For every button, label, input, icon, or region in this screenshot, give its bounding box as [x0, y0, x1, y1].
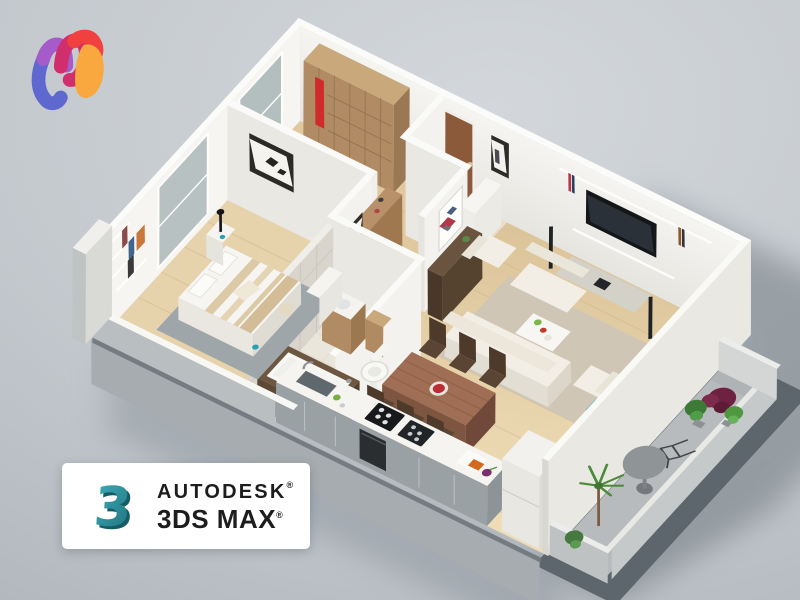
product-name: 3DS MAX® [157, 506, 293, 532]
badge-text: AUTODESK® 3DS MAX® [157, 481, 293, 532]
svg-text:3: 3 [92, 476, 134, 536]
brand-name: AUTODESK® [157, 481, 293, 502]
3dsmax-3-icon: 3 3 [82, 476, 144, 536]
render-canvas: 3 3 AUTODESK® 3DS MAX® [0, 0, 800, 600]
m-watermark-logo [8, 4, 118, 114]
autodesk-3dsmax-badge: 3 3 AUTODESK® 3DS MAX® [62, 463, 310, 549]
